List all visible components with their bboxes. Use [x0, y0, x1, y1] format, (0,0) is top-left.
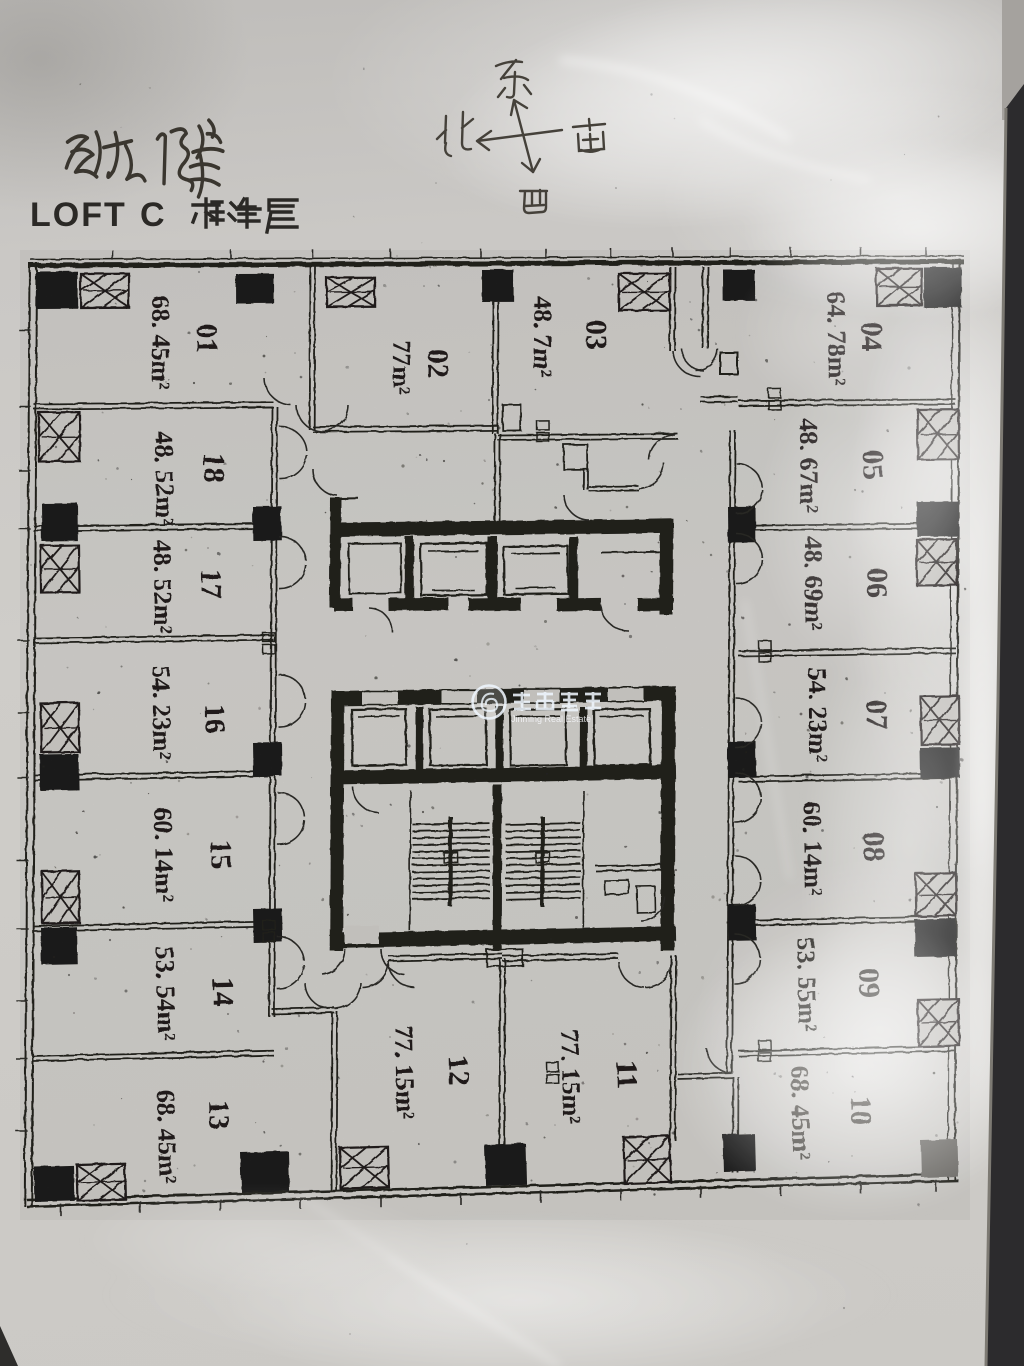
svg-text:C: C [140, 196, 165, 234]
svg-text:LOFT: LOFT [30, 196, 127, 234]
svg-text:Jinming Real Estate: Jinming Real Estate [511, 714, 591, 724]
